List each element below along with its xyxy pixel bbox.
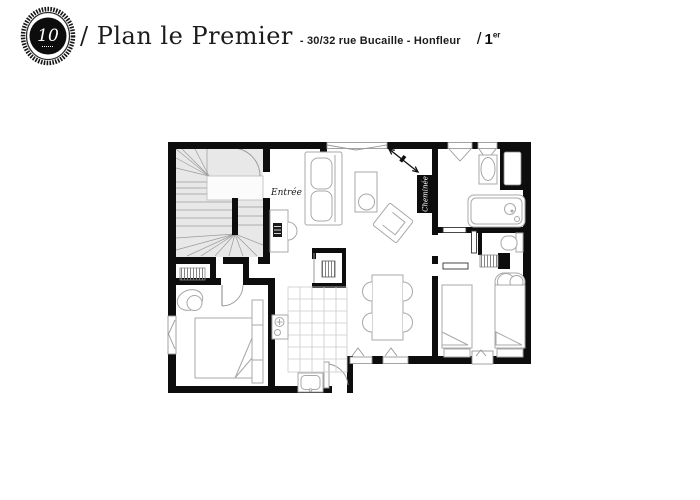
bedroom1-door-swing xyxy=(222,285,243,306)
bathtub-icon xyxy=(468,195,525,227)
single-bed-right xyxy=(495,285,525,357)
duct-inset xyxy=(504,152,521,185)
staircase xyxy=(176,148,263,257)
floor-suffix: er xyxy=(493,31,501,40)
cheminee-label: Cheminée xyxy=(422,176,430,212)
kitchen-door-leaf xyxy=(324,362,329,388)
bedroom2-door-leaf xyxy=(443,263,468,269)
oven-icon xyxy=(298,373,323,392)
bedroom1-window xyxy=(168,316,176,354)
wc-door-leaf xyxy=(472,231,477,253)
floor-indicator: /1er xyxy=(477,29,501,49)
chimney-block xyxy=(498,253,510,269)
double-bed xyxy=(195,300,263,383)
dining-chair xyxy=(403,313,413,332)
logo-monogram: 10 xyxy=(37,26,59,46)
page-title: / Plan le Premier xyxy=(80,22,293,50)
kitchen-tiles xyxy=(288,287,347,372)
kitchen xyxy=(272,287,347,392)
dining-area xyxy=(363,275,413,340)
entree-label: Entrée xyxy=(270,187,302,198)
stair-landing xyxy=(207,176,263,200)
toilet-icon xyxy=(501,233,523,252)
sofa xyxy=(305,152,342,225)
closet-radiator-icon xyxy=(322,261,335,277)
floor-plan: Entrée Cheminée xyxy=(165,110,535,400)
kitchen-door-swing xyxy=(329,364,348,385)
entry-hall xyxy=(270,210,297,252)
desk-chair xyxy=(288,222,297,240)
bedroom-2 xyxy=(442,255,525,357)
coffee-table xyxy=(355,172,377,212)
header-title-row: / Plan le Premier - 30/32 rue Bucaille -… xyxy=(80,22,500,50)
floor-slash: / xyxy=(477,29,482,48)
bedroom-1 xyxy=(174,268,263,383)
floor-plan-canvas: Entrée Cheminée xyxy=(165,110,535,400)
dining-window-2 xyxy=(383,348,408,364)
dining-window-1 xyxy=(350,348,372,364)
single-bed-left xyxy=(442,285,472,357)
living-room xyxy=(305,152,413,243)
bedroom2-window xyxy=(472,350,493,364)
kitchen-sink xyxy=(272,315,288,339)
armchair xyxy=(373,203,414,244)
bathroom-sink-icon xyxy=(479,155,497,184)
dining-chair xyxy=(403,282,413,301)
brand-logo-badge: 10 xyxy=(20,6,78,68)
bedroom1-armchair xyxy=(174,286,205,314)
living-window xyxy=(327,143,387,151)
direction-arrow xyxy=(389,149,418,172)
fireplace: Cheminée xyxy=(417,175,438,213)
bathroom-door-leaf xyxy=(443,228,466,233)
page-subtitle: - 30/32 rue Bucaille - Honfleur xyxy=(300,35,461,47)
stair-center-wall xyxy=(232,198,238,235)
bathroom-window-1 xyxy=(448,143,472,162)
dining-table xyxy=(372,275,403,340)
brand-logo: 10 xyxy=(20,6,78,68)
dining-chair xyxy=(363,313,373,332)
bedroom1-radiator-icon xyxy=(180,268,205,280)
floor-number: 1 xyxy=(484,31,492,48)
bedroom2-radiator-icon xyxy=(480,255,498,267)
dining-chair xyxy=(363,282,373,301)
